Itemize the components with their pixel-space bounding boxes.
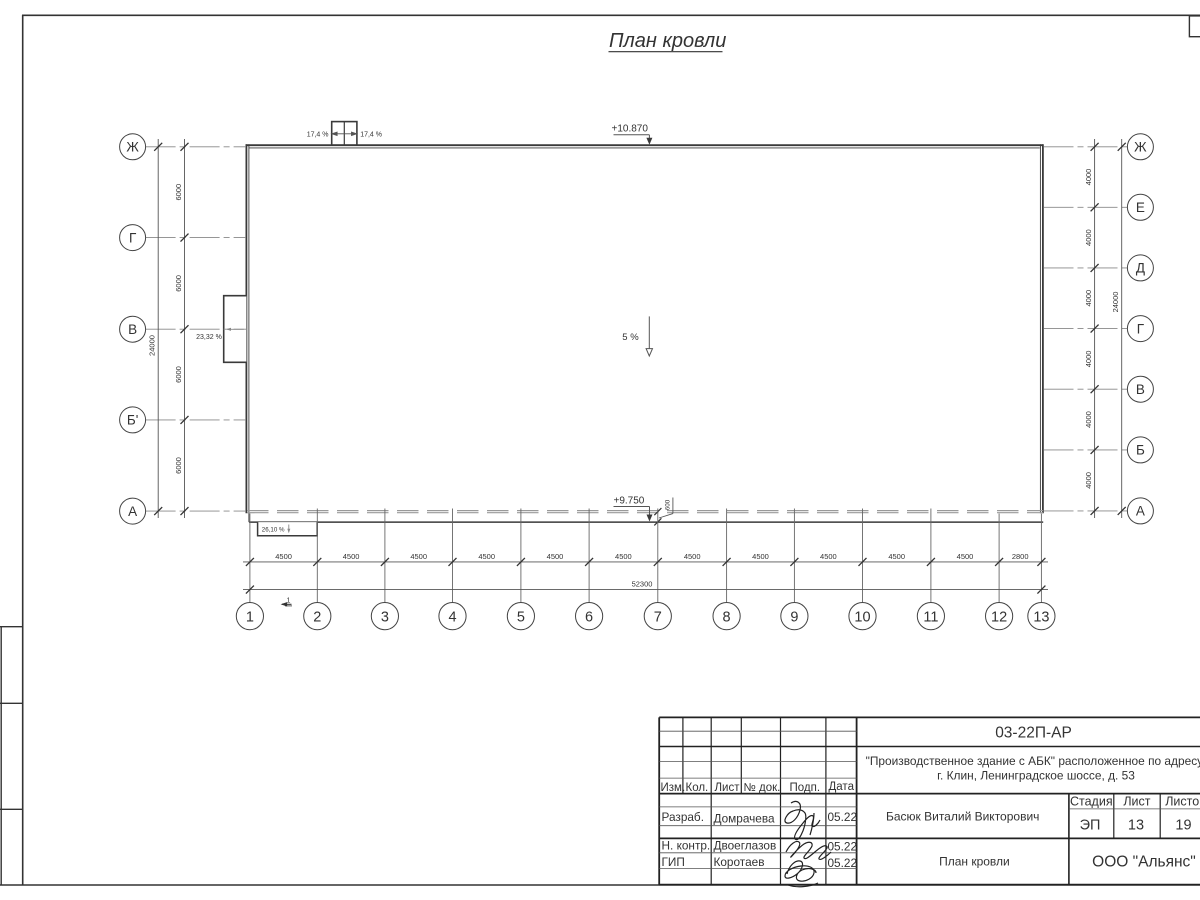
svg-text:Г: Г: [129, 230, 137, 245]
svg-text:4500: 4500: [547, 552, 564, 561]
svg-text:+9.750: +9.750: [614, 496, 645, 507]
svg-text:4000: 4000: [1084, 411, 1093, 428]
svg-text:Дата: Дата: [829, 781, 855, 793]
svg-text:Двоеглазов: Двоеглазов: [714, 839, 777, 853]
svg-text:В: В: [1136, 382, 1145, 397]
svg-text:5 %: 5 %: [622, 332, 639, 343]
svg-text:4500: 4500: [275, 552, 292, 561]
svg-text:52300: 52300: [632, 579, 653, 588]
svg-text:10: 10: [854, 609, 870, 625]
svg-text:Н. контр.: Н. контр.: [662, 839, 711, 853]
svg-text:Ж: Ж: [126, 140, 139, 155]
svg-text:4500: 4500: [888, 552, 905, 561]
svg-text:2: 2: [313, 609, 321, 625]
svg-text:4500: 4500: [343, 552, 360, 561]
svg-text:6: 6: [585, 609, 593, 625]
svg-text:В: В: [128, 322, 137, 337]
svg-text:8: 8: [723, 609, 731, 625]
svg-text:19: 19: [1175, 818, 1191, 834]
svg-text:05.22: 05.22: [828, 856, 858, 870]
svg-text:12: 12: [991, 609, 1007, 625]
svg-text:+10.870: +10.870: [612, 124, 649, 135]
svg-text:1: 1: [287, 597, 291, 604]
svg-text:г. Клин, Ленинградское шоссе,: г. Клин, Ленинградское шоссе, д. 53: [937, 769, 1135, 783]
svg-text:4500: 4500: [478, 552, 495, 561]
svg-text:Листов: Листов: [1165, 795, 1200, 809]
svg-text:Кол.: Кол.: [686, 782, 709, 794]
svg-text:4500: 4500: [615, 552, 632, 561]
svg-text:Е: Е: [1136, 200, 1145, 215]
svg-text:4000: 4000: [1084, 229, 1093, 246]
svg-text:Подп.: Подп.: [790, 782, 821, 794]
svg-text:Лист: Лист: [1123, 795, 1150, 809]
svg-text:Ж: Ж: [1134, 140, 1147, 155]
svg-text:03-22П-АР: 03-22П-АР: [995, 725, 1072, 742]
svg-text:Разраб.: Разраб.: [662, 810, 704, 824]
svg-text:Г: Г: [1137, 321, 1145, 336]
svg-text:4500: 4500: [684, 552, 701, 561]
svg-text:24000: 24000: [1111, 292, 1120, 313]
svg-text:Б': Б': [127, 413, 138, 428]
svg-text:24000: 24000: [148, 335, 157, 356]
svg-text:4000: 4000: [1084, 290, 1093, 307]
svg-text:ЭП: ЭП: [1080, 818, 1101, 834]
svg-text:Изм.: Изм.: [661, 782, 686, 794]
svg-text:23,32 %: 23,32 %: [196, 334, 222, 341]
svg-text:6000: 6000: [174, 366, 183, 383]
svg-text:4500: 4500: [410, 552, 427, 561]
svg-text:2800: 2800: [1012, 552, 1029, 561]
svg-text:13: 13: [1128, 818, 1144, 834]
svg-text:4000: 4000: [1084, 169, 1093, 186]
svg-text:Лист: Лист: [715, 782, 741, 794]
svg-text:11: 11: [923, 609, 938, 625]
svg-text:№ док.: № док.: [744, 782, 781, 794]
svg-text:"Производственное здание с АБК: "Производственное здание с АБК" располож…: [866, 754, 1200, 768]
svg-text:4500: 4500: [752, 552, 769, 561]
svg-text:17,4 %: 17,4 %: [307, 131, 329, 138]
svg-text:4000: 4000: [1084, 472, 1093, 489]
svg-text:Стадия: Стадия: [1070, 795, 1113, 809]
svg-text:А: А: [128, 504, 137, 519]
svg-text:ГИП: ГИП: [662, 855, 685, 869]
svg-text:Д: Д: [1136, 261, 1145, 276]
svg-text:13: 13: [1033, 609, 1049, 625]
svg-text:26,10 %: 26,10 %: [262, 527, 285, 534]
svg-text:600: 600: [665, 499, 672, 510]
svg-text:05.22: 05.22: [828, 840, 858, 854]
svg-text:Басюк Виталий Викторович: Басюк Виталий Викторович: [886, 810, 1039, 824]
svg-text:9: 9: [790, 609, 798, 625]
svg-text:ООО "Альянс": ООО "Альянс": [1092, 854, 1196, 871]
svg-text:Б: Б: [1136, 443, 1145, 458]
svg-text:1: 1: [246, 609, 254, 625]
svg-text:3: 3: [381, 609, 389, 625]
svg-text:6000: 6000: [174, 457, 183, 474]
svg-text:План кровли: План кровли: [609, 30, 726, 52]
svg-text:05.22: 05.22: [828, 810, 858, 824]
svg-text:4: 4: [448, 609, 456, 625]
svg-text:План кровли: План кровли: [939, 854, 1010, 868]
svg-text:5: 5: [517, 609, 525, 625]
svg-text:Коротаев: Коротаев: [714, 855, 765, 869]
svg-text:4500: 4500: [957, 552, 974, 561]
svg-text:Домрачева: Домрачева: [714, 812, 775, 826]
svg-text:17,4 %: 17,4 %: [360, 131, 382, 138]
svg-text:4500: 4500: [820, 552, 837, 561]
svg-text:6000: 6000: [174, 275, 183, 292]
svg-text:А: А: [1136, 504, 1145, 519]
svg-text:6000: 6000: [174, 184, 183, 201]
svg-text:4000: 4000: [1084, 351, 1093, 368]
svg-text:7: 7: [654, 609, 662, 625]
